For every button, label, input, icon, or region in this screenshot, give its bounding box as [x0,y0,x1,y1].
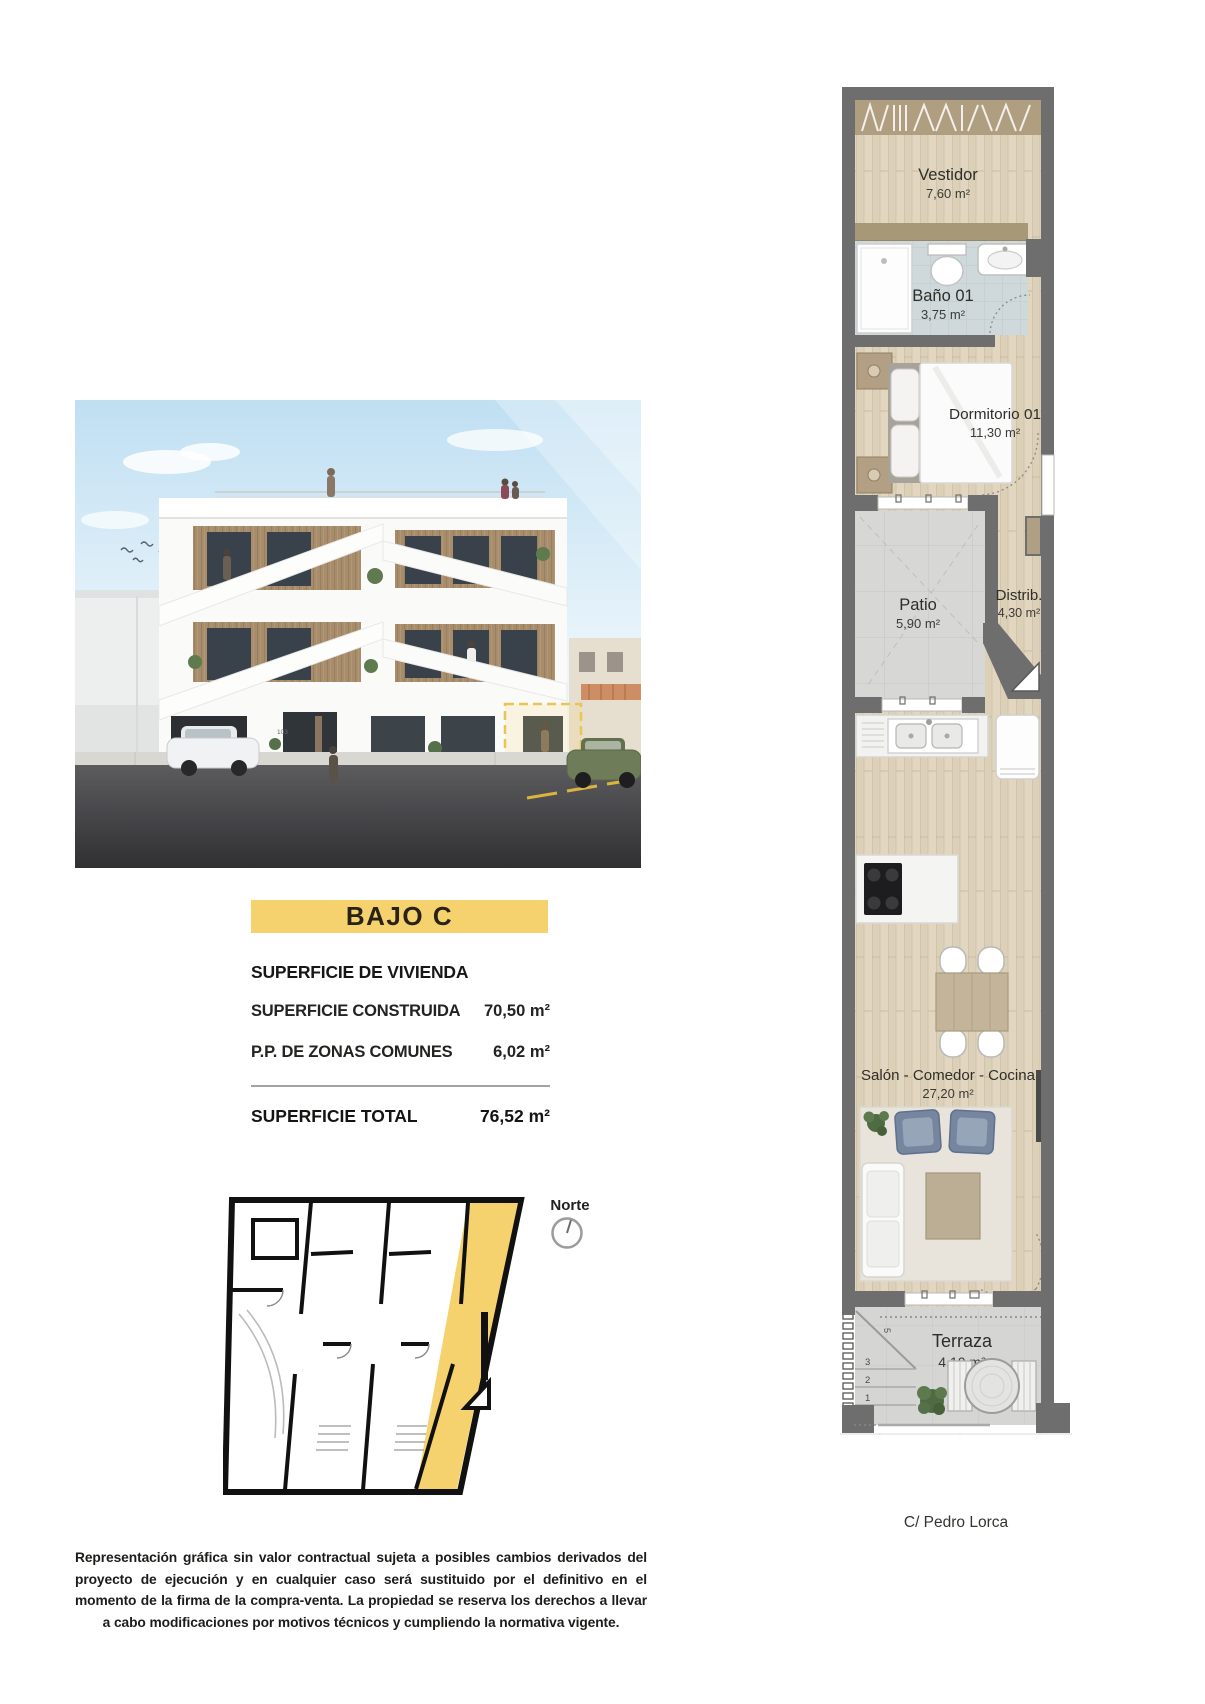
island [856,855,958,923]
floor-plan: Vestidor 7,60 m² Baño 01 3,75 m² [840,85,1072,1435]
terrace-table-set [948,1359,1036,1413]
boundary-ticks [843,1313,853,1409]
sofa [862,1163,904,1277]
terrace-plant [917,1386,947,1415]
room-label: Terraza [932,1331,993,1351]
street-label: C/ Pedro Lorca [840,1514,1072,1532]
room-label: Vestidor [918,166,978,184]
unit-highlight-box [505,704,581,755]
toilet [928,244,966,286]
window-band-terraza [855,1291,1041,1307]
room-area-label: 7,60 m² [926,186,971,201]
corner-block-left [842,1405,874,1433]
coffee-table [926,1173,980,1239]
unit-title-banner: BAJO C [251,900,548,933]
area-row-value: 70,50 m² [394,1002,550,1021]
room-label: Patio [899,596,937,614]
stair-mark: 5 [882,1328,892,1333]
room-label: Baño 01 [912,287,973,305]
sink [978,244,1032,275]
room-area-label: 11,30 m² [970,425,1021,440]
room-area-label: 5,90 m² [896,616,941,631]
step-number: 1 [865,1393,870,1404]
room-label: Dormitorio 01 [949,406,1041,423]
area-table-title: SUPERFICIE DE VIVIENDA [251,962,468,983]
north-label: Norte [538,1197,602,1214]
room-bano: Baño 01 3,75 m² [855,239,1041,347]
north-compass-icon [549,1215,585,1251]
distrib-niche [1026,517,1041,555]
room-patio: Patio 5,90 m² [855,511,985,701]
entrance-number: 103 [277,729,288,736]
step-number: 3 [865,1357,870,1368]
disclaimer-text: Representación gráfica sin valor contrac… [75,1547,647,1633]
table-divider [251,1085,550,1087]
area-total-value: 76,52 m² [394,1106,550,1127]
site-plan-drawing [223,1194,527,1500]
room-area-label: 27,20 m² [922,1086,974,1101]
building-render: 103 [75,400,641,868]
window-band-kitchen [855,697,985,713]
room-area-label: 4,30 m² [998,606,1040,620]
sidewalk [840,1433,1072,1435]
step-number: 2 [865,1375,870,1386]
room-label: Distrib. [996,587,1043,604]
closet-shelf [855,223,1028,241]
area-row-value: 6,02 m² [394,1043,550,1062]
room-area-label: 3,75 m² [921,307,966,322]
right-wall-window [1042,455,1054,515]
balcony-person [223,549,231,581]
area-total-label: SUPERFICIE TOTAL [251,1106,418,1127]
rooftop-person [327,468,335,497]
room-terraza: 5 Terraza 4,10 m² 3 2 1 [842,1307,1070,1433]
neighbor-building-left [75,590,161,754]
pedestrian [329,746,338,782]
shower [857,244,912,333]
unit-title: BAJO C [346,901,453,932]
room-label: Salón - Comedor - Cocina [861,1067,1036,1084]
main-building: 103 [159,468,581,755]
